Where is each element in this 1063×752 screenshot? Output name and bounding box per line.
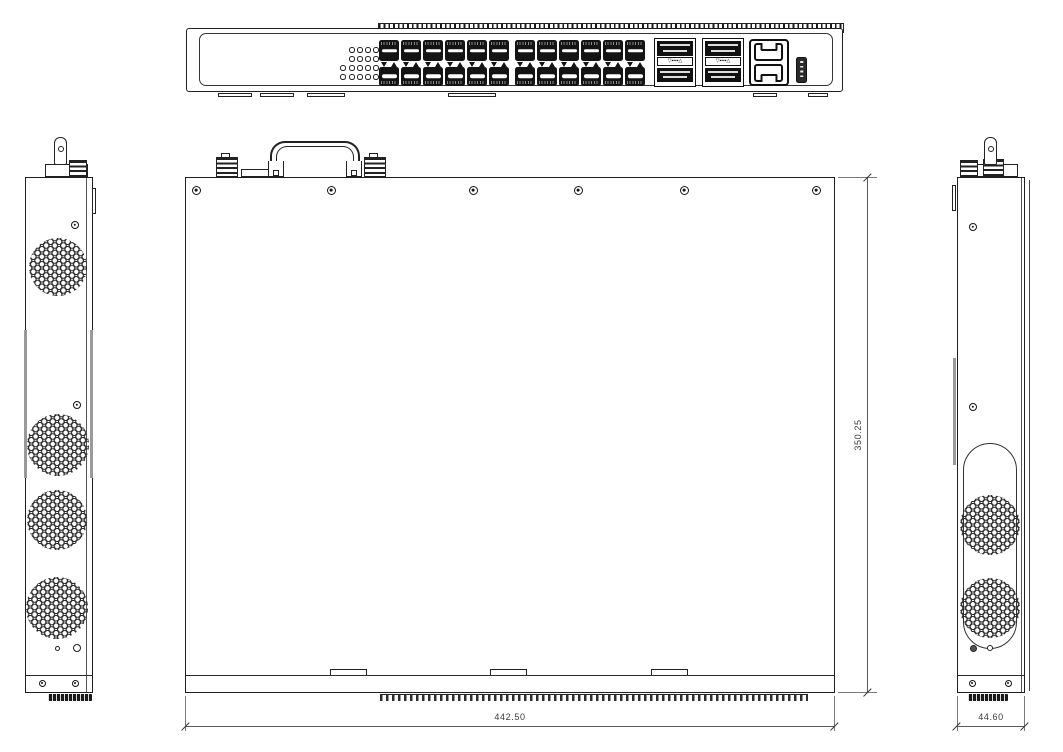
qsfp-port-bottom: [705, 68, 741, 83]
left-side-handle-hole: [58, 146, 64, 152]
sfp-port-cage-top: [401, 40, 421, 61]
small-hole: [987, 645, 993, 651]
rj45-jack-bottom: [754, 64, 783, 82]
sfp-port-cage-bottom: [423, 67, 443, 86]
fan-vent-honeycomb: [960, 578, 1020, 638]
led-hole: [357, 74, 362, 79]
fan-vent-honeycomb: [960, 495, 1020, 555]
led-hole: [340, 65, 345, 70]
sfp-port-cage-top: [537, 40, 557, 61]
handle-foot-left-pin: [273, 170, 279, 176]
triangle-down-icon: [491, 62, 497, 67]
dim-height-line: [957, 726, 1025, 727]
usb-port: [796, 57, 807, 83]
triangle-up-icon: [479, 62, 485, 67]
chassis-foot: [260, 93, 294, 98]
dim-height-label: 44.60: [961, 712, 1021, 722]
led-hole: [357, 65, 362, 70]
sfp-port-cage-top: [581, 40, 601, 61]
screw-icon: [680, 186, 689, 195]
led-hole: [349, 47, 354, 52]
terminal-block-right: [364, 157, 386, 177]
sfp-port-cage-top: [625, 40, 645, 61]
sfp-port-cage-top: [423, 40, 443, 61]
sfp-port-cage-bottom: [537, 67, 557, 86]
screw-icon: [327, 186, 336, 195]
triangle-up-icon: [637, 62, 643, 67]
led-hole: [365, 56, 370, 61]
chassis-foot: [448, 93, 496, 98]
small-hole-dark: [970, 645, 977, 652]
qsfp-port-top: [705, 41, 741, 56]
top-view-rear-vent-strip: [380, 694, 808, 701]
chassis-foot: [218, 93, 252, 98]
qsfp-port-bottom: [657, 68, 693, 83]
triangle-up-icon: [501, 62, 507, 67]
screw-icon: [1005, 680, 1012, 687]
screw-icon: [72, 680, 79, 687]
qsfp-port-top: [657, 41, 693, 56]
triangle-down-icon: [605, 62, 611, 67]
left-side-bottom-band-line: [26, 675, 92, 676]
led-hole: [373, 56, 378, 61]
sfp-port-cage-top: [515, 40, 535, 61]
bottom-clip-tab: [651, 669, 688, 675]
top-flat-plate: [241, 169, 269, 177]
triangle-up-icon: [571, 62, 577, 67]
triangle-up-icon: [435, 62, 441, 67]
screw-icon: [192, 186, 201, 195]
qsfp-port-label: ▽▪▪▪▪△: [705, 57, 741, 66]
left-side-rail-right: [90, 330, 93, 478]
chassis-foot: [808, 93, 828, 98]
right-side-handle-hole: [988, 146, 994, 152]
left-side-rail-left: [24, 330, 27, 478]
triangle-down-icon: [517, 62, 523, 67]
screw-icon: [812, 186, 821, 195]
sfp-port-cage-bottom: [603, 67, 623, 86]
right-side-bottom-band-line: [958, 675, 1024, 676]
led-hole: [349, 65, 354, 70]
led-hole: [357, 47, 362, 52]
led-hole: [365, 74, 370, 79]
right-side-inner-line: [1021, 178, 1022, 692]
screw-icon: [71, 221, 79, 229]
triangle-up-icon: [527, 62, 533, 67]
sfp-port-cage-bottom: [489, 67, 509, 86]
triangle-up-icon: [413, 62, 419, 67]
triangle-down-icon: [539, 62, 545, 67]
led-hole: [365, 47, 370, 52]
right-side-rail: [953, 358, 956, 465]
sfp-port-cage-bottom: [401, 67, 421, 86]
triangle-up-icon: [549, 62, 555, 67]
sfp-port-cage-bottom: [625, 67, 645, 86]
bottom-clip-tab: [330, 669, 367, 675]
led-hole: [340, 74, 345, 79]
chassis-foot: [307, 93, 345, 98]
top-view-bottom-inner-line: [186, 675, 834, 676]
screw-icon: [574, 186, 583, 195]
right-side-connector-strip: [968, 694, 1008, 701]
sfp-port-cage-top: [467, 40, 487, 61]
sfp-port-cage-top: [559, 40, 579, 61]
led-hole: [373, 65, 378, 70]
qsfp-port-label: ▽▪▪▪▪△: [657, 57, 693, 66]
small-hole: [55, 646, 60, 651]
triangle-up-icon: [457, 62, 463, 67]
right-side-edge-tab: [952, 185, 956, 211]
right-side-terminal-block-left: [960, 160, 978, 177]
left-side-edge-tab: [92, 188, 96, 214]
left-side-connector-strip: [48, 694, 92, 701]
dim-depth-label: 350.25: [853, 400, 865, 470]
triangle-down-icon: [403, 62, 409, 67]
led-hole: [365, 65, 370, 70]
triangle-down-icon: [425, 62, 431, 67]
terminal-block-left: [216, 157, 238, 177]
carry-handle-inner: [276, 146, 354, 177]
chassis-foot: [753, 93, 777, 98]
top-view-outline: [185, 177, 835, 693]
mechanical-drawing-canvas: 350.25 442.50 44.60 ▽▪▪▪▪△▽▪▪▪▪△: [0, 0, 1063, 752]
bottom-clip-tab: [490, 669, 527, 675]
rj45-jack-top: [754, 43, 783, 61]
led-hole: [373, 47, 378, 52]
triangle-up-icon: [615, 62, 621, 67]
dim-depth-line: [867, 177, 868, 693]
screw-icon: [969, 223, 977, 231]
triangle-up-icon: [391, 62, 397, 67]
sfp-port-cage-top: [603, 40, 623, 61]
sfp-port-cage-bottom: [581, 67, 601, 86]
screw-icon: [969, 680, 976, 687]
sfp-port-cage-top: [379, 40, 399, 61]
sfp-port-cage-bottom: [467, 67, 487, 86]
sfp-port-cage-top: [489, 40, 509, 61]
screw-icon: [969, 403, 977, 411]
fan-vent-honeycomb: [27, 490, 87, 550]
screw-icon: [39, 680, 46, 687]
triangle-down-icon: [381, 62, 387, 67]
fan-vent-honeycomb: [26, 577, 88, 639]
led-hole: [373, 74, 378, 79]
sfp-port-cage-bottom: [559, 67, 579, 86]
sfp-port-cage-bottom: [445, 67, 465, 86]
dim-depth-ext-top: [838, 177, 877, 178]
triangle-up-icon: [593, 62, 599, 67]
triangle-down-icon: [583, 62, 589, 67]
left-side-terminal-block: [69, 160, 87, 177]
fan-vent-honeycomb: [27, 414, 89, 476]
dim-width-line: [185, 726, 835, 727]
right-side-flange-line: [1029, 180, 1030, 691]
triangle-down-icon: [627, 62, 633, 67]
screw-icon: [469, 186, 478, 195]
triangle-down-icon: [447, 62, 453, 67]
led-hole: [349, 74, 354, 79]
small-hole: [73, 644, 81, 652]
dim-depth-ext-bottom: [838, 692, 877, 693]
triangle-down-icon: [469, 62, 475, 67]
sfp-port-cage-bottom: [379, 67, 399, 86]
sfp-port-cage-bottom: [515, 67, 535, 86]
fan-vent-honeycomb: [29, 238, 87, 296]
handle-foot-right-pin: [351, 170, 357, 176]
triangle-down-icon: [561, 62, 567, 67]
led-hole: [349, 56, 354, 61]
dim-width-label: 442.50: [470, 712, 550, 722]
sfp-port-cage-top: [445, 40, 465, 61]
led-hole: [357, 56, 362, 61]
screw-icon: [73, 401, 81, 409]
